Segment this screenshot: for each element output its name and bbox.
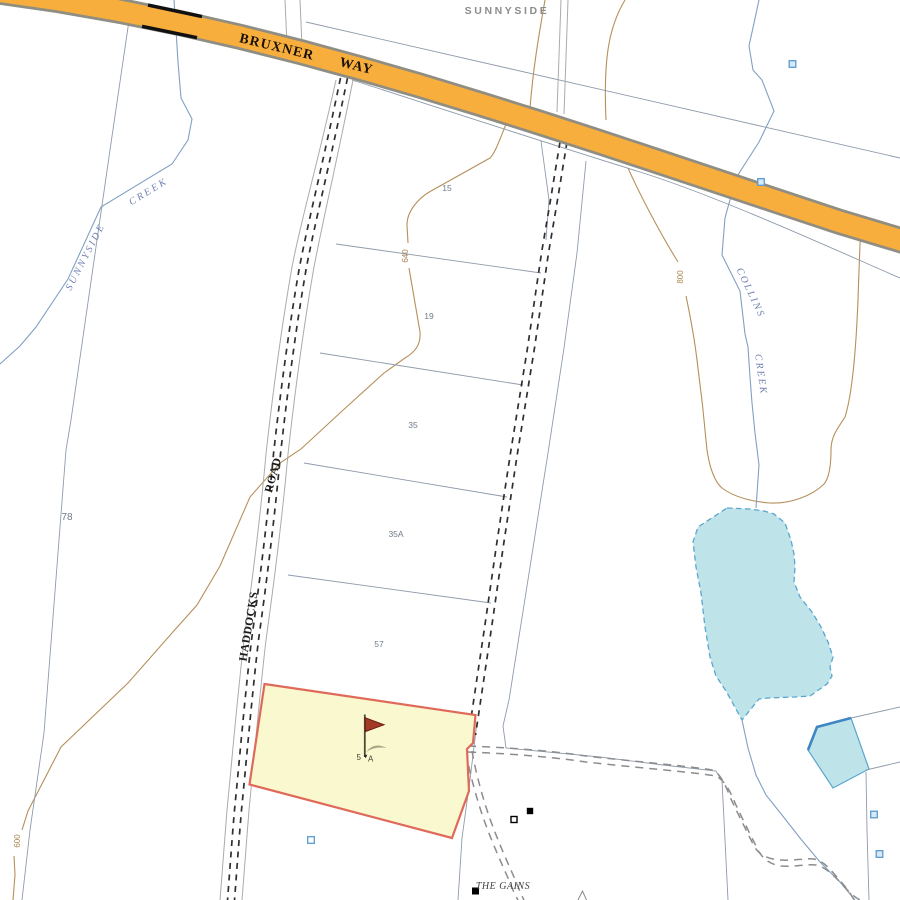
- svg-text:78: 78: [61, 512, 73, 523]
- svg-text:15: 15: [442, 183, 452, 193]
- svg-text:35A: 35A: [388, 529, 403, 539]
- svg-text:57: 57: [374, 639, 384, 649]
- svg-text:5: 5: [357, 753, 362, 762]
- svg-text:SUNNYSIDE: SUNNYSIDE: [465, 5, 550, 17]
- svg-text:800: 800: [676, 270, 685, 284]
- svg-text:640: 640: [401, 249, 410, 263]
- svg-text:A: A: [368, 755, 374, 764]
- svg-text:600: 600: [13, 834, 22, 848]
- svg-text:35: 35: [408, 420, 418, 430]
- svg-text:19: 19: [424, 311, 434, 321]
- svg-text:THE GAINS: THE GAINS: [476, 881, 530, 892]
